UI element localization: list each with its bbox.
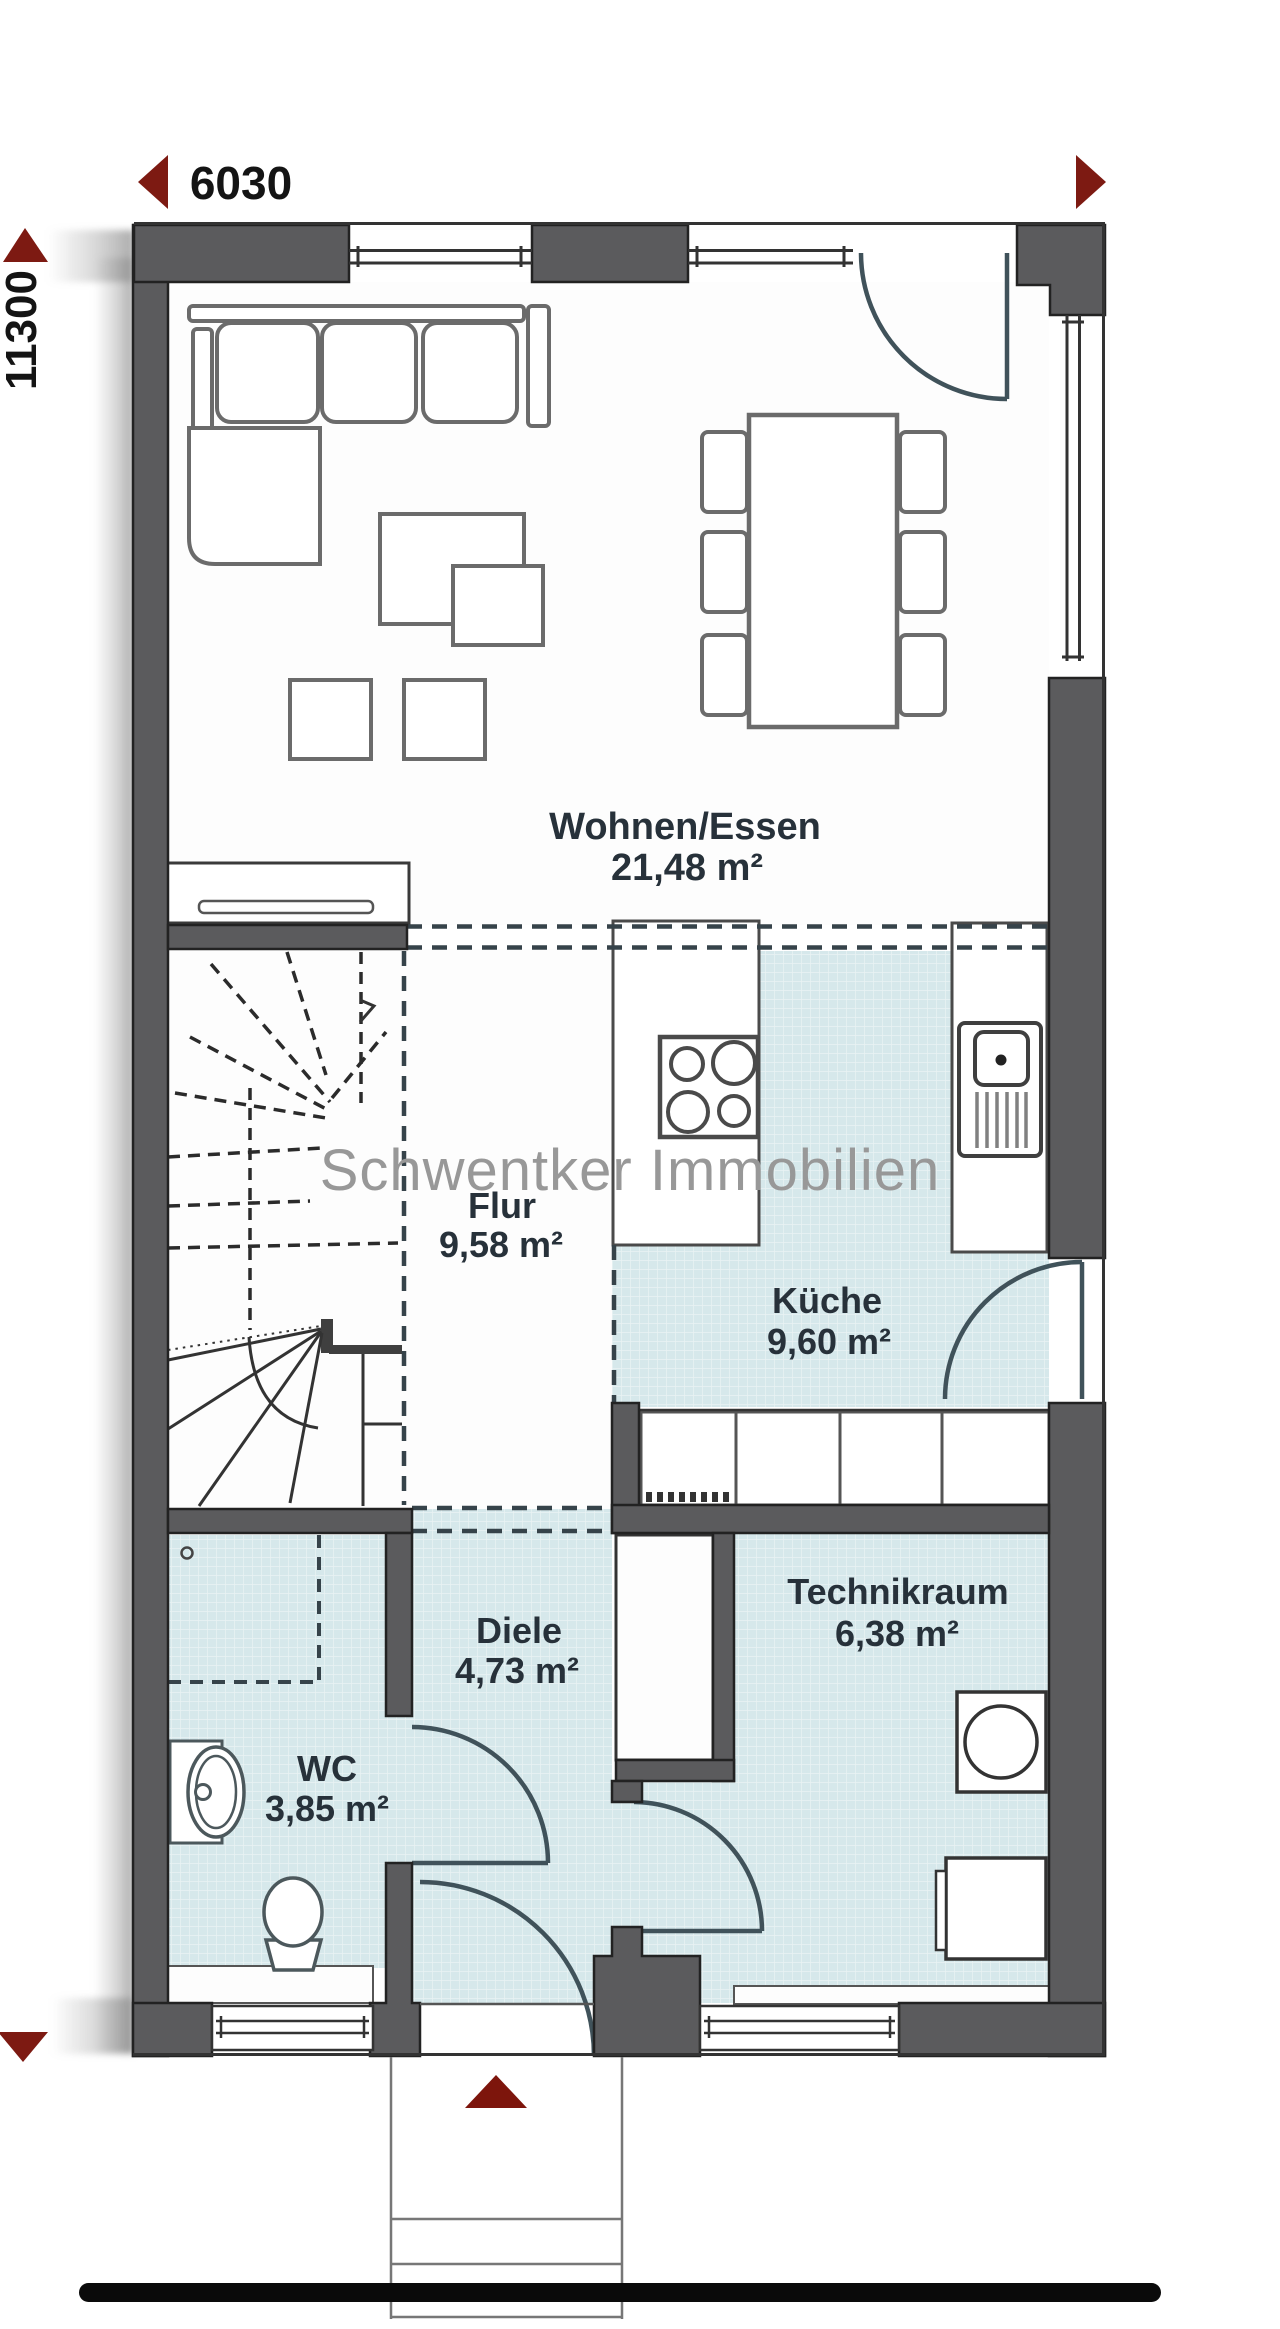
svg-text:4,73 m²: 4,73 m² bbox=[455, 1650, 579, 1691]
svg-text:Küche: Küche bbox=[772, 1280, 882, 1321]
svg-text:6030: 6030 bbox=[190, 157, 292, 209]
svg-text:Wohnen/Essen: Wohnen/Essen bbox=[549, 806, 821, 848]
svg-text:Diele: Diele bbox=[476, 1610, 562, 1651]
svg-text:Technikraum: Technikraum bbox=[787, 1571, 1008, 1612]
svg-text:21,48 m²: 21,48 m² bbox=[611, 847, 763, 889]
svg-text:3,85 m²: 3,85 m² bbox=[265, 1788, 389, 1829]
svg-text:11300: 11300 bbox=[0, 270, 46, 390]
svg-text:9,60 m²: 9,60 m² bbox=[767, 1321, 891, 1362]
svg-text:6,38 m²: 6,38 m² bbox=[835, 1613, 959, 1654]
svg-text:Schwentker Immobilien: Schwentker Immobilien bbox=[320, 1138, 941, 1203]
svg-text:9,58 m²: 9,58 m² bbox=[439, 1224, 563, 1265]
svg-text:WC: WC bbox=[297, 1748, 357, 1789]
